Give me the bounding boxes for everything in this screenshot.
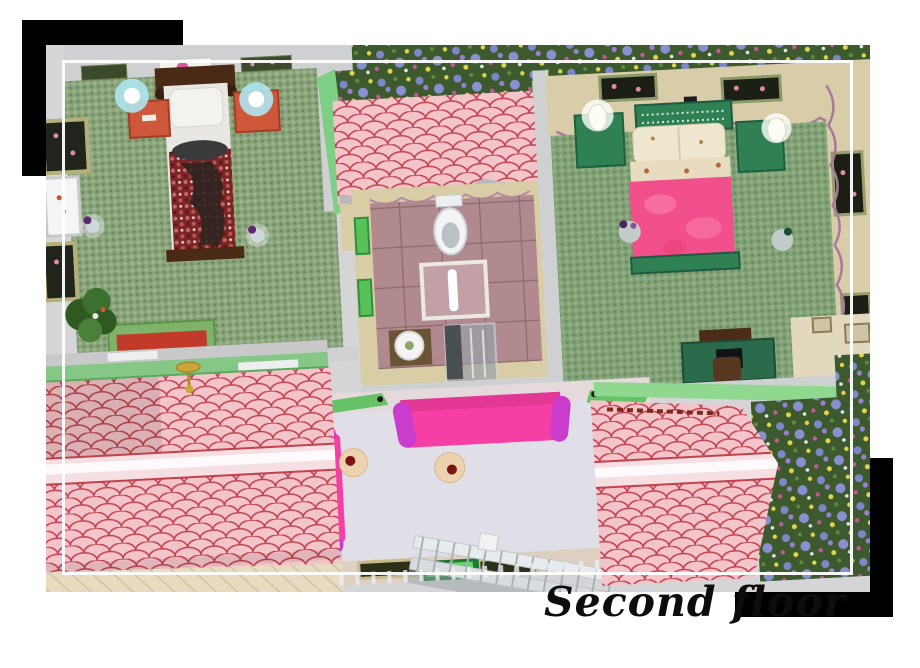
sink (389, 328, 433, 366)
toilet (433, 194, 468, 255)
page-canvas: Second floor (0, 0, 920, 668)
bathtub (421, 262, 488, 319)
scene (46, 45, 870, 592)
shower (444, 323, 497, 384)
caption-label: Second floor (544, 582, 846, 623)
bedroom-right (545, 58, 870, 430)
bed-pink (623, 100, 740, 273)
roof-bottom-left (46, 340, 345, 592)
floorplan-photo (46, 45, 870, 592)
